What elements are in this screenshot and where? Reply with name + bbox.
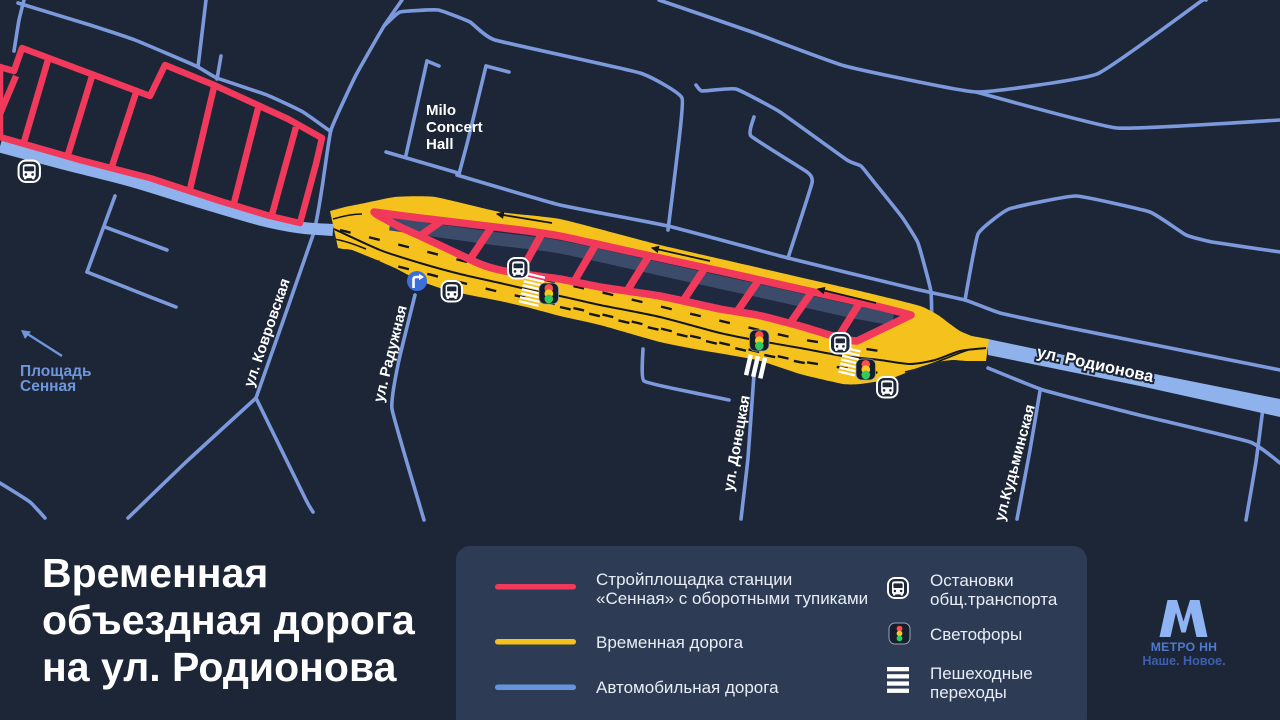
svg-text:Стройплощадка станции: Стройплощадка станции <box>596 570 792 589</box>
svg-text:на ул. Родионова: на ул. Родионова <box>42 644 398 690</box>
svg-text:Milo: Milo <box>426 102 456 119</box>
svg-text:МЕТРО НН: МЕТРО НН <box>1151 640 1218 654</box>
svg-text:Наше. Новое.: Наше. Новое. <box>1142 654 1225 668</box>
svg-text:Сенная: Сенная <box>20 378 76 395</box>
svg-text:Hall: Hall <box>426 136 454 153</box>
svg-text:Светофоры: Светофоры <box>930 625 1022 644</box>
svg-text:объездная дорога: объездная дорога <box>42 597 416 643</box>
svg-text:Временная дорога: Временная дорога <box>596 633 744 652</box>
svg-text:общ.транспорта: общ.транспорта <box>930 590 1058 609</box>
svg-text:Остановки: Остановки <box>930 571 1014 590</box>
svg-text:«Сенная» с оборотными тупиками: «Сенная» с оборотными тупиками <box>596 589 868 608</box>
svg-text:переходы: переходы <box>930 683 1007 702</box>
svg-text:Concert: Concert <box>426 119 483 136</box>
svg-text:Автомобильная дорога: Автомобильная дорога <box>596 678 779 697</box>
svg-text:Пешеходные: Пешеходные <box>930 664 1033 683</box>
svg-text:Временная: Временная <box>42 550 268 596</box>
